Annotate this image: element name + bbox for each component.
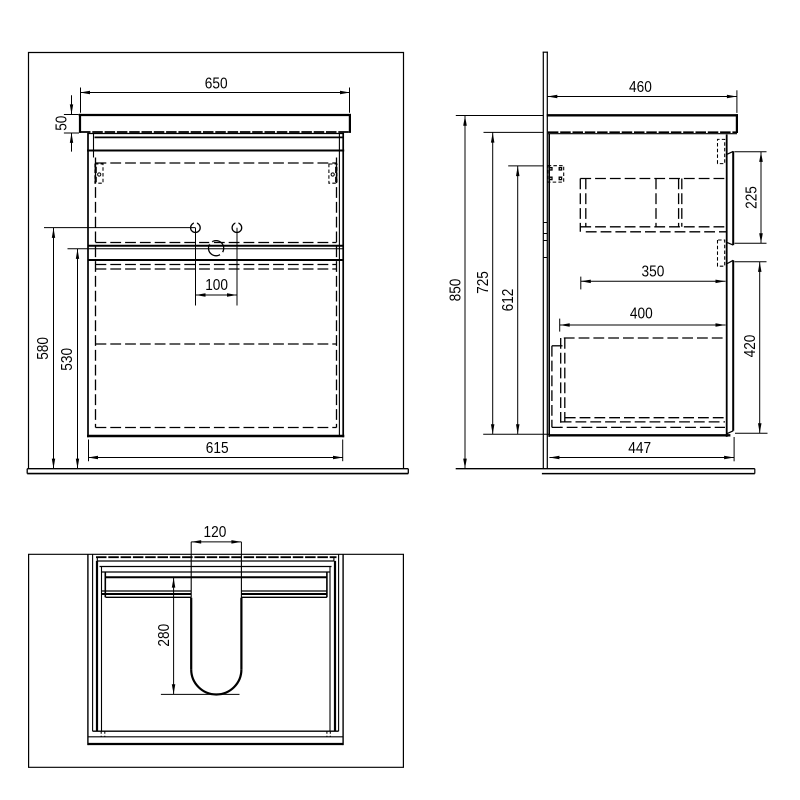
svg-text:447: 447 [628,440,651,457]
svg-text:580: 580 [35,337,52,360]
svg-text:650: 650 [205,75,228,92]
svg-text:225: 225 [743,186,760,209]
svg-text:615: 615 [206,440,229,457]
svg-text:460: 460 [629,79,652,96]
svg-text:612: 612 [500,289,517,312]
svg-text:725: 725 [475,271,492,294]
svg-text:850: 850 [447,279,464,302]
svg-text:350: 350 [642,264,665,281]
svg-text:420: 420 [742,335,759,358]
svg-text:280: 280 [156,624,173,647]
svg-text:400: 400 [630,306,653,323]
svg-text:120: 120 [204,524,227,541]
svg-text:100: 100 [205,277,228,294]
svg-text:50: 50 [54,116,71,131]
svg-text:530: 530 [59,348,76,371]
